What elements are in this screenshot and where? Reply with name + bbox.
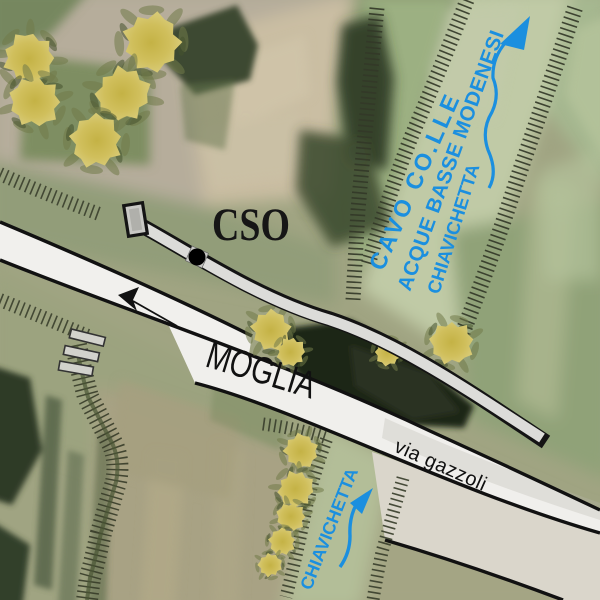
svg-text:CSO: CSO — [212, 199, 290, 251]
